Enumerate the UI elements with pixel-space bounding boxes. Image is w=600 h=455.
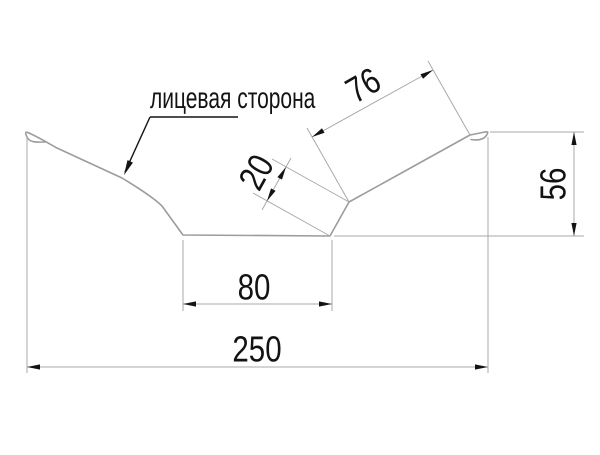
left-hem-fold xyxy=(26,132,45,142)
ext-line-20-upper xyxy=(272,159,349,202)
arrow-250-right xyxy=(475,364,488,369)
ext-line-76-upper xyxy=(428,61,470,135)
ext-line-76-lower xyxy=(307,128,349,202)
dim-250-label: 250 xyxy=(232,329,281,369)
arrow-56-top xyxy=(571,132,576,145)
dim-80-label: 80 xyxy=(238,267,271,307)
callout-group: лицевая сторона xyxy=(121,83,316,177)
callout-leader-lines xyxy=(125,117,238,172)
dim-76-label: 76 xyxy=(339,59,388,110)
dim-56-label: 56 xyxy=(533,168,573,201)
arrow-56-bottom xyxy=(571,223,576,236)
drawing-canvas: 250 80 56 76 20 лицевая сторона xyxy=(0,0,600,455)
arrow-250-left xyxy=(27,364,40,369)
arrow-80-right xyxy=(319,301,332,306)
callout-label: лицевая сторона xyxy=(150,83,316,115)
technical-drawing: 250 80 56 76 20 лицевая сторона xyxy=(0,0,600,455)
callout-arrow xyxy=(121,160,133,176)
ext-line-20-lower xyxy=(253,193,330,236)
arrow-80-left xyxy=(183,301,196,306)
